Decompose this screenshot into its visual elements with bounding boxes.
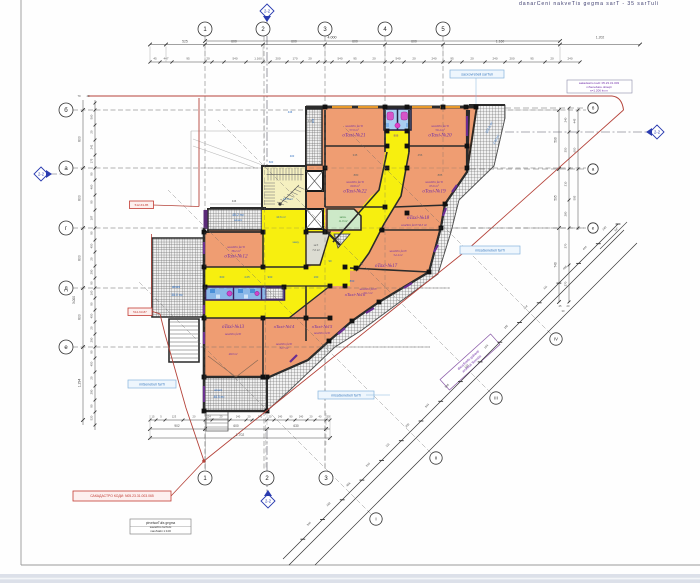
svg-text:1.202: 1.202 xyxy=(596,36,605,40)
svg-text:savaWro farTi 56.3 m²: savaWro farTi 56.3 m² xyxy=(401,223,427,227)
svg-text:7.6 m²: 7.6 m² xyxy=(312,248,320,252)
svg-text:445: 445 xyxy=(573,118,577,123)
svg-text:350: 350 xyxy=(564,147,568,152)
svg-text:20: 20 xyxy=(550,57,554,61)
svg-text:240: 240 xyxy=(258,415,263,419)
svg-text:902: 902 xyxy=(174,424,180,428)
svg-text:456: 456 xyxy=(418,153,423,157)
svg-text:sacxovrebeli sarTuli: sacxovrebeli sarTuli xyxy=(461,72,493,76)
svg-text:aivani: aivani xyxy=(234,218,242,222)
svg-text:3.000: 3.000 xyxy=(72,296,76,304)
svg-text:370: 370 xyxy=(564,243,568,248)
svg-text:95: 95 xyxy=(353,57,357,61)
svg-text:345: 345 xyxy=(353,153,358,157)
svg-text:280: 280 xyxy=(564,211,568,216)
svg-text:446: 446 xyxy=(288,110,293,114)
svg-text:20: 20 xyxy=(206,57,210,61)
svg-text:aivani: aivani xyxy=(214,388,222,392)
svg-text:450: 450 xyxy=(90,361,94,366)
svg-text:123: 123 xyxy=(172,415,177,419)
svg-text:240: 240 xyxy=(567,57,572,61)
svg-text:240: 240 xyxy=(492,57,497,61)
svg-text:740: 740 xyxy=(554,262,558,268)
svg-text:446: 446 xyxy=(232,199,237,203)
svg-text:600: 600 xyxy=(220,275,225,279)
svg-text:1.702: 1.702 xyxy=(236,433,245,437)
svg-text:90: 90 xyxy=(90,350,94,354)
svg-text:95: 95 xyxy=(450,57,454,61)
svg-text:240: 240 xyxy=(564,117,568,122)
svg-text:600: 600 xyxy=(573,147,577,152)
svg-text:oTaxi-№16: oTaxi-№16 xyxy=(345,292,366,297)
svg-text:160: 160 xyxy=(90,290,94,295)
svg-text:48.0 m²: 48.0 m² xyxy=(229,352,238,356)
svg-text:240: 240 xyxy=(236,415,241,419)
svg-text:20: 20 xyxy=(308,57,312,61)
svg-text:880: 880 xyxy=(354,173,359,177)
svg-text:danarCeni nakveTis gegma sarT: danarCeni nakveTis gegma sarT - 35 sarTu… xyxy=(519,1,659,7)
svg-text:600: 600 xyxy=(231,40,237,44)
svg-text:69.8 m²: 69.8 m² xyxy=(350,184,359,188)
svg-text:4.000: 4.000 xyxy=(328,36,337,40)
svg-text:240: 240 xyxy=(431,57,436,61)
svg-text:520: 520 xyxy=(90,415,94,420)
svg-text:oTaxi-№20: oTaxi-№20 xyxy=(428,133,452,139)
svg-text:590: 590 xyxy=(554,137,558,143)
svg-text:600: 600 xyxy=(411,40,417,44)
svg-text:20: 20 xyxy=(90,376,94,380)
svg-text:2-2: 2-2 xyxy=(264,9,271,14)
svg-text:11.9 m²: 11.9 m² xyxy=(339,219,348,223)
svg-text:oTaxi-№22: oTaxi-№22 xyxy=(343,189,367,195)
svg-text:290: 290 xyxy=(90,389,94,394)
svg-text:saT.: saT. xyxy=(314,243,319,247)
svg-text:65.6 m²: 65.6 m² xyxy=(429,184,438,188)
svg-text:446: 446 xyxy=(308,119,313,123)
svg-text:525: 525 xyxy=(182,40,188,44)
svg-text:38.2 m²: 38.2 m² xyxy=(231,249,240,253)
svg-text:90: 90 xyxy=(90,231,94,235)
svg-text:460: 460 xyxy=(90,184,94,189)
svg-text:900: 900 xyxy=(268,275,273,279)
svg-text:20: 20 xyxy=(412,57,416,61)
svg-text:187: 187 xyxy=(90,215,94,220)
svg-text:oTaxi-№12: oTaxi-№12 xyxy=(224,254,248,260)
svg-text:38.0 m²: 38.0 m² xyxy=(171,293,183,297)
svg-text:175: 175 xyxy=(90,158,94,163)
svg-text:1.294: 1.294 xyxy=(78,379,82,388)
svg-text:70: 70 xyxy=(77,94,81,98)
svg-text:90: 90 xyxy=(336,237,340,241)
svg-text:160: 160 xyxy=(314,275,319,279)
svg-text:45.2 m²: 45.2 m² xyxy=(232,213,244,217)
svg-text:oTaxi-№21: oTaxi-№21 xyxy=(342,133,366,139)
svg-text:oTaxi-№13: oTaxi-№13 xyxy=(222,324,245,330)
svg-text:oTaxi-№19: oTaxi-№19 xyxy=(422,189,446,195)
svg-text:oTaxi-№18: oTaxi-№18 xyxy=(407,215,430,221)
svg-text:595: 595 xyxy=(554,195,558,201)
svg-text:1.160: 1.160 xyxy=(496,40,505,44)
svg-text:20: 20 xyxy=(90,130,94,134)
svg-text:241: 241 xyxy=(90,144,94,149)
svg-text:540: 540 xyxy=(337,57,342,61)
svg-text:540: 540 xyxy=(232,57,237,61)
svg-text:32.7 m²: 32.7 m² xyxy=(280,346,289,350)
svg-text:170: 170 xyxy=(292,57,297,61)
svg-text:20: 20 xyxy=(470,57,474,61)
svg-text:20: 20 xyxy=(90,257,94,261)
svg-text:IV: IV xyxy=(554,337,558,342)
svg-text:2-2: 2-2 xyxy=(38,172,45,177)
svg-text:512-63-87: 512-63-87 xyxy=(133,310,147,314)
svg-text:III: III xyxy=(494,396,498,401)
svg-text:400: 400 xyxy=(290,154,295,158)
svg-text:20: 20 xyxy=(90,326,94,330)
svg-text:д: д xyxy=(64,286,68,292)
svg-text:90: 90 xyxy=(90,281,94,285)
svg-text:540: 540 xyxy=(395,57,400,61)
svg-text:860: 860 xyxy=(350,279,355,283)
svg-text:600: 600 xyxy=(78,314,82,320)
svg-text:600: 600 xyxy=(78,255,82,261)
svg-text:310: 310 xyxy=(564,181,568,186)
svg-text:45: 45 xyxy=(153,57,157,61)
svg-text:sawy.: sawy. xyxy=(293,240,300,244)
svg-text:95: 95 xyxy=(186,57,190,61)
svg-text:595: 595 xyxy=(573,195,577,200)
svg-text:90: 90 xyxy=(90,404,94,408)
svg-text:10.6 m²: 10.6 m² xyxy=(276,215,286,219)
svg-text:2-2: 2-2 xyxy=(654,130,661,135)
svg-text:misaSenebeli farTi: misaSenebeli farTi xyxy=(475,248,505,252)
svg-text:б: б xyxy=(592,106,595,111)
svg-text:4.05: 4.05 xyxy=(244,275,250,279)
svg-text:885: 885 xyxy=(438,173,443,177)
svg-text:600: 600 xyxy=(233,424,239,428)
svg-text:oTaxi-№15: oTaxi-№15 xyxy=(312,324,333,329)
svg-text:200: 200 xyxy=(275,57,280,61)
svg-text:САКАДАСТРО КОДИ: N05.23.31.003: САКАДАСТРО КОДИ: N05.23.31.003.065 xyxy=(90,494,154,498)
svg-text:240: 240 xyxy=(278,415,283,419)
svg-text:б: б xyxy=(64,108,68,114)
svg-text:600: 600 xyxy=(78,136,82,142)
svg-text:240: 240 xyxy=(299,415,304,419)
svg-text:aivani: aivani xyxy=(172,285,181,289)
svg-text:600: 600 xyxy=(78,195,82,201)
svg-text:806: 806 xyxy=(394,134,399,138)
svg-text:95: 95 xyxy=(530,57,534,61)
svg-text:59.4 m²: 59.4 m² xyxy=(435,128,444,132)
svg-text:miSenebuli farTi: miSenebuli farTi xyxy=(139,382,165,386)
svg-text:s=1.206 kv.m: s=1.206 kv.m xyxy=(590,88,608,92)
svg-text:450: 450 xyxy=(90,313,94,318)
svg-text:370: 370 xyxy=(564,281,568,286)
svg-text:I: I xyxy=(375,517,376,522)
svg-text:290: 290 xyxy=(90,269,94,274)
svg-text:630: 630 xyxy=(293,424,299,428)
svg-text:oTaxi-№14: oTaxi-№14 xyxy=(274,324,295,329)
svg-text:40: 40 xyxy=(86,94,90,98)
svg-text:560: 560 xyxy=(90,114,94,119)
svg-text:90: 90 xyxy=(90,302,94,306)
svg-text:1124: 1124 xyxy=(205,415,211,419)
svg-text:1.160: 1.160 xyxy=(254,57,262,61)
svg-text:90: 90 xyxy=(328,259,332,263)
svg-text:512-63-85: 512-63-85 xyxy=(135,203,149,207)
svg-text:57.9 m²: 57.9 m² xyxy=(349,128,358,132)
svg-text:600: 600 xyxy=(269,160,274,164)
svg-text:18.6 m²: 18.6 m² xyxy=(283,197,293,201)
svg-text:46.5 m²: 46.5 m² xyxy=(214,395,225,399)
svg-text:20: 20 xyxy=(372,57,376,61)
svg-text:masStabi 1:100: masStabi 1:100 xyxy=(150,529,171,533)
svg-text:54.4 m²: 54.4 m² xyxy=(393,253,402,257)
svg-text:misaSenebeli farTi: misaSenebeli farTi xyxy=(331,393,361,397)
svg-text:savaWro farTi: savaWro farTi xyxy=(225,332,242,336)
svg-text:450: 450 xyxy=(90,243,94,248)
svg-text:90: 90 xyxy=(90,200,94,204)
svg-text:290: 290 xyxy=(90,337,94,342)
svg-text:600: 600 xyxy=(352,40,358,44)
svg-text:90: 90 xyxy=(90,172,94,176)
svg-text:600: 600 xyxy=(291,40,297,44)
svg-text:oTaxi-№17: oTaxi-№17 xyxy=(375,263,398,269)
svg-text:savaWro farTi: savaWro farTi xyxy=(314,331,331,335)
svg-text:2-2: 2-2 xyxy=(265,499,272,504)
svg-text:200: 200 xyxy=(509,57,514,61)
svg-text:II: II xyxy=(435,456,438,461)
